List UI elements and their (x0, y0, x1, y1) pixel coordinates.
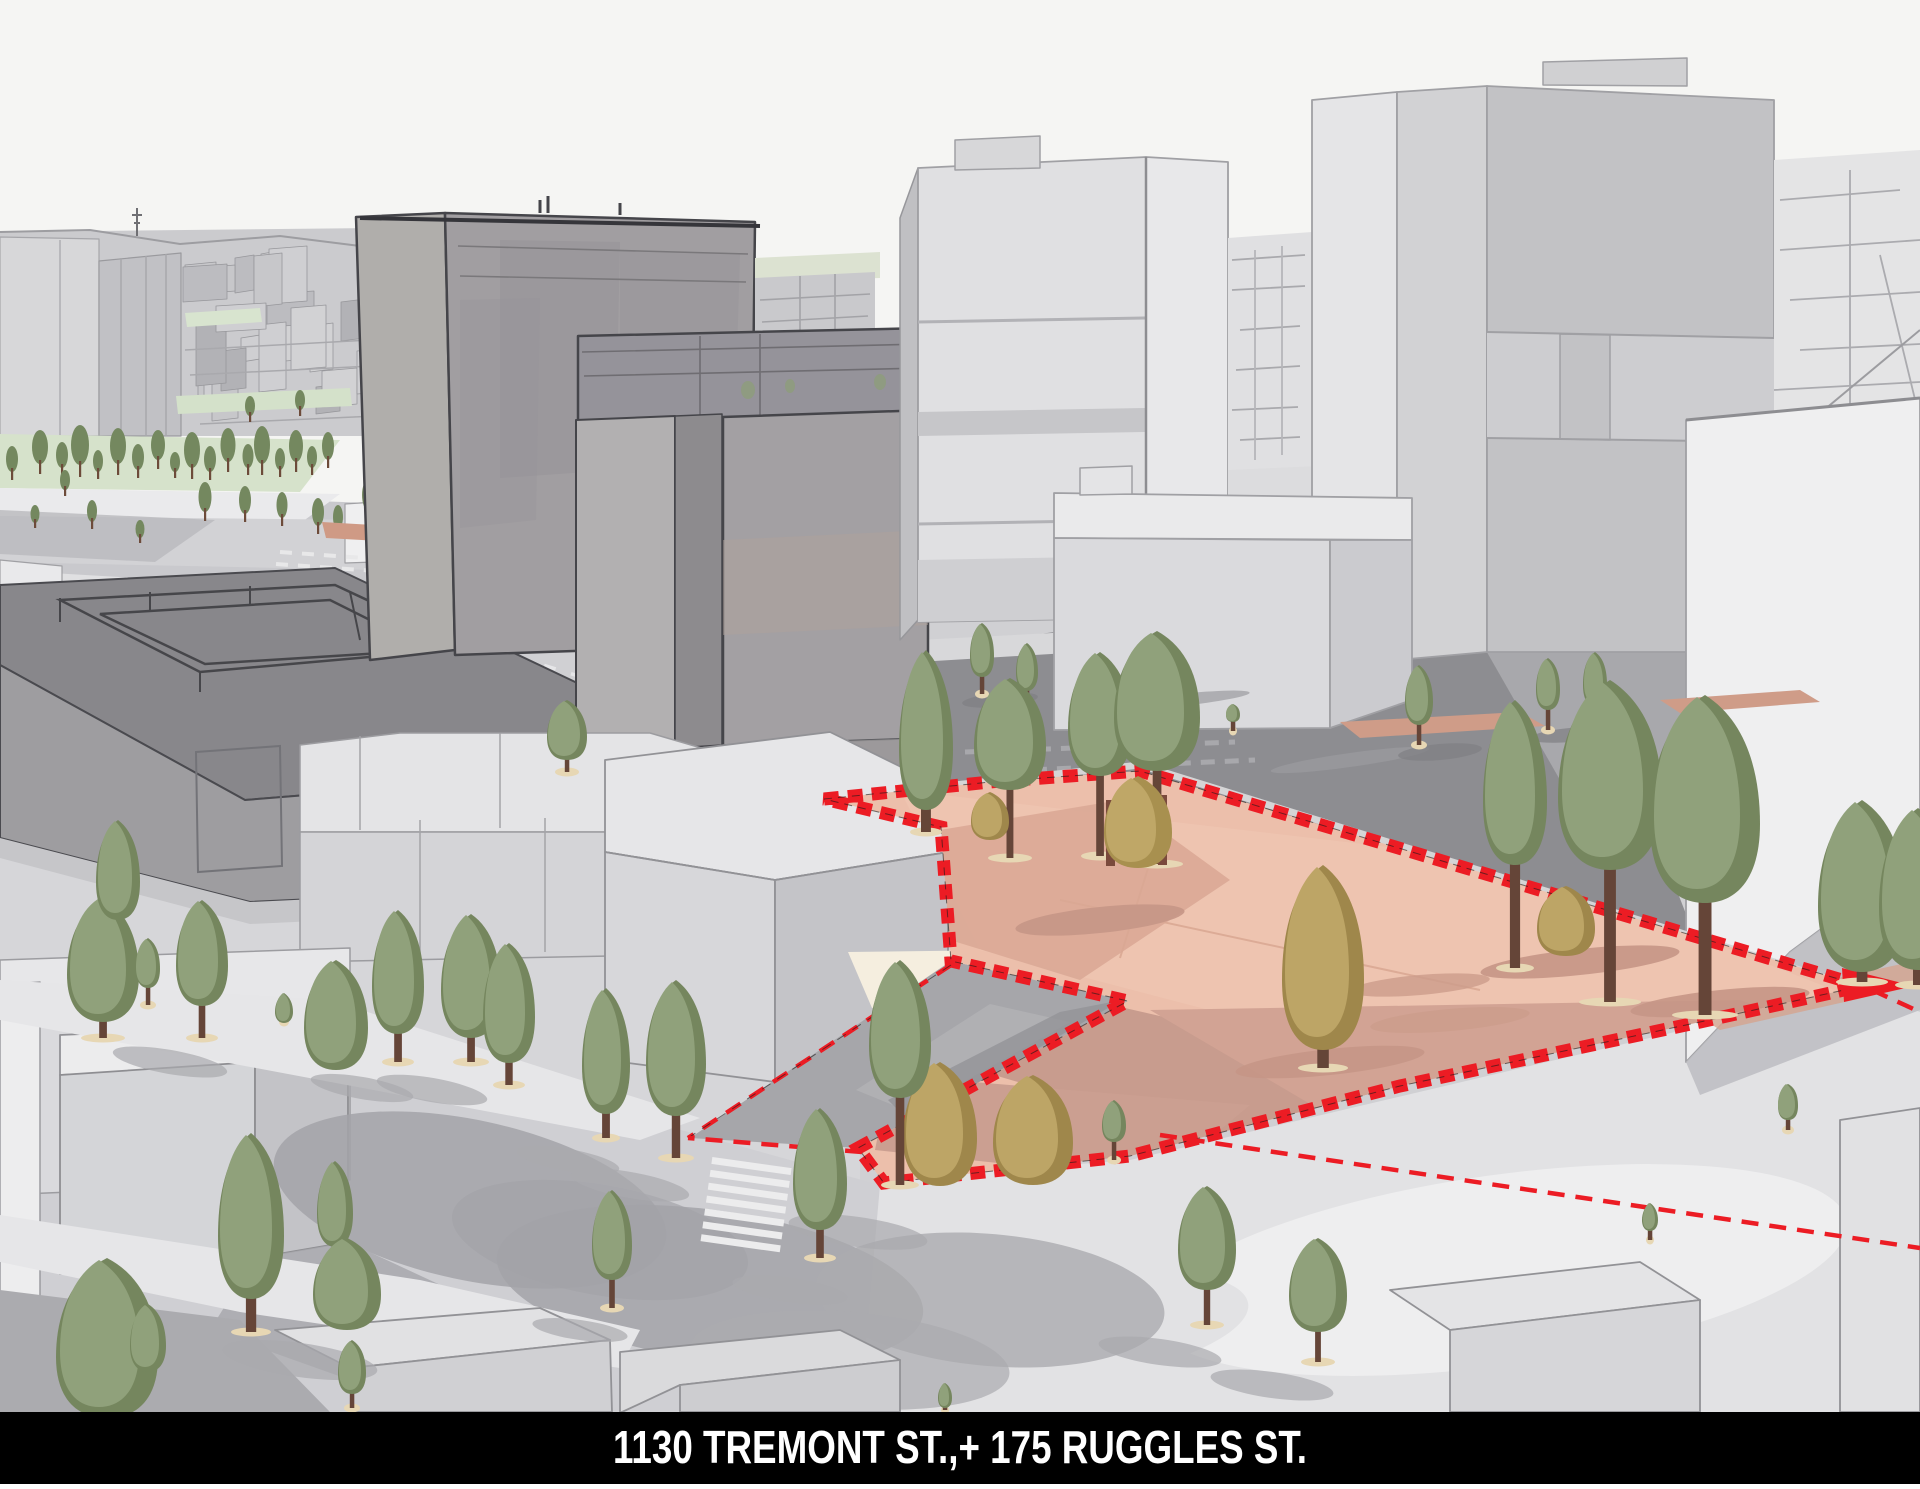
svg-text:1130 TREMONT ST.,+ 175 RUGGLES: 1130 TREMONT ST.,+ 175 RUGGLES ST. (613, 1421, 1307, 1473)
